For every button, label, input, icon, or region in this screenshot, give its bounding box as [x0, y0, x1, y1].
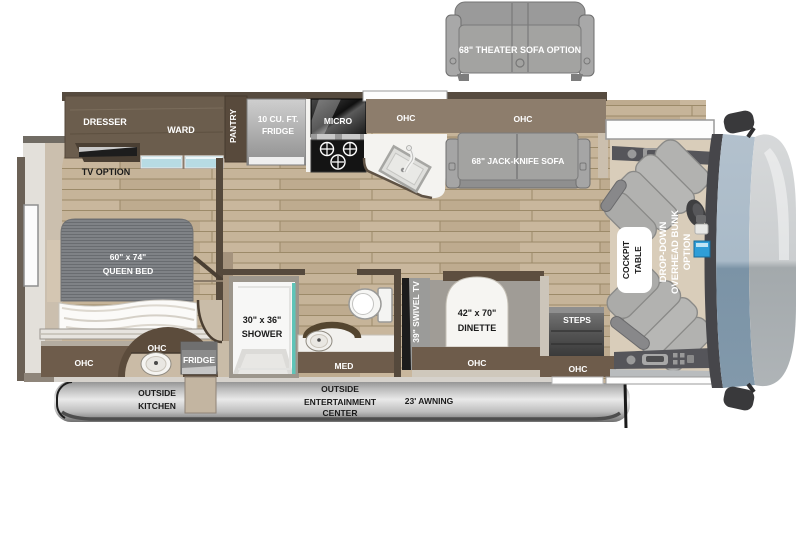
svg-text:DRESSER: DRESSER — [83, 117, 127, 127]
svg-text:42" x 70": 42" x 70" — [458, 308, 497, 318]
svg-text:DINETTE: DINETTE — [458, 323, 497, 333]
svg-text:QUEEN BED: QUEEN BED — [103, 266, 154, 276]
svg-text:OHC: OHC — [514, 114, 533, 124]
svg-text:68" THEATER SOFA OPTION: 68" THEATER SOFA OPTION — [459, 45, 581, 55]
svg-text:OUTSIDE: OUTSIDE — [321, 384, 359, 394]
svg-text:68" JACK-KNIFE SOFA: 68" JACK-KNIFE SOFA — [472, 156, 565, 166]
svg-text:MICRO: MICRO — [324, 116, 353, 126]
svg-text:FRIDGE: FRIDGE — [262, 126, 294, 136]
svg-text:23' AWNING: 23' AWNING — [405, 396, 454, 406]
svg-text:OHC: OHC — [75, 358, 94, 368]
svg-text:OUTSIDE: OUTSIDE — [138, 388, 176, 398]
svg-text:FRIDGE: FRIDGE — [183, 355, 215, 365]
svg-text:OPTION: OPTION — [682, 234, 693, 271]
svg-text:OVERHEAD BUNK: OVERHEAD BUNK — [670, 210, 681, 294]
svg-text:WARD: WARD — [167, 125, 195, 135]
svg-text:OHC: OHC — [397, 113, 416, 123]
svg-text:CENTER: CENTER — [323, 408, 358, 418]
svg-text:KITCHEN: KITCHEN — [138, 401, 176, 411]
svg-text:PANTRY: PANTRY — [228, 109, 238, 143]
svg-text:10 CU. FT.: 10 CU. FT. — [258, 114, 299, 124]
svg-text:OHC: OHC — [148, 343, 167, 353]
svg-text:60" x 74": 60" x 74" — [110, 252, 146, 262]
svg-text:TV OPTION: TV OPTION — [82, 167, 131, 177]
svg-text:39" SWIVEL TV: 39" SWIVEL TV — [411, 281, 421, 343]
svg-text:SHOWER: SHOWER — [242, 329, 283, 339]
svg-text:MED: MED — [335, 361, 354, 371]
svg-text:ENTERTAINMENT: ENTERTAINMENT — [304, 397, 377, 407]
svg-text:TABLE: TABLE — [633, 246, 643, 274]
svg-text:STEPS: STEPS — [563, 315, 591, 325]
svg-text:OHC: OHC — [569, 364, 588, 374]
svg-text:OHC: OHC — [468, 358, 487, 368]
svg-text:COCKPIT: COCKPIT — [621, 240, 631, 279]
svg-text:30" x 36": 30" x 36" — [243, 315, 282, 325]
svg-text:DROP-DOWN: DROP-DOWN — [658, 222, 669, 283]
